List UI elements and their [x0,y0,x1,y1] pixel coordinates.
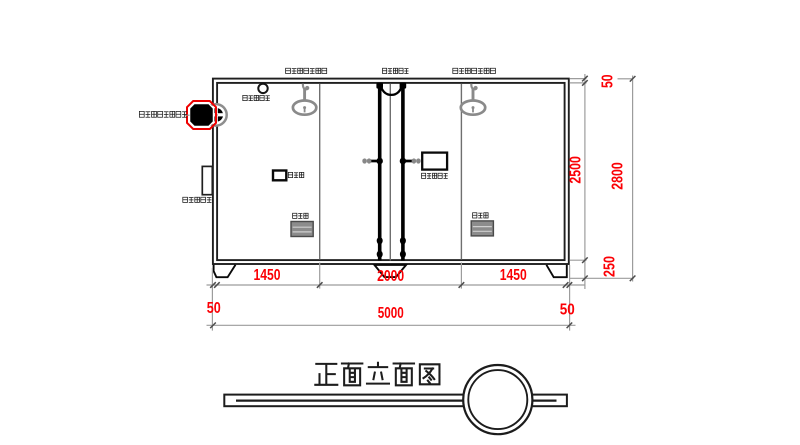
svg-text:2800: 2800 [610,162,627,190]
svg-text:2500: 2500 [568,156,585,184]
svg-text:50: 50 [560,302,575,319]
svg-text:250: 250 [602,256,619,277]
svg-text:50: 50 [207,300,221,317]
svg-text:5000: 5000 [378,305,404,322]
svg-text:1450: 1450 [254,267,281,284]
svg-text:50: 50 [600,74,617,88]
svg-text:2000: 2000 [377,268,404,285]
svg-text:1450: 1450 [500,267,527,284]
